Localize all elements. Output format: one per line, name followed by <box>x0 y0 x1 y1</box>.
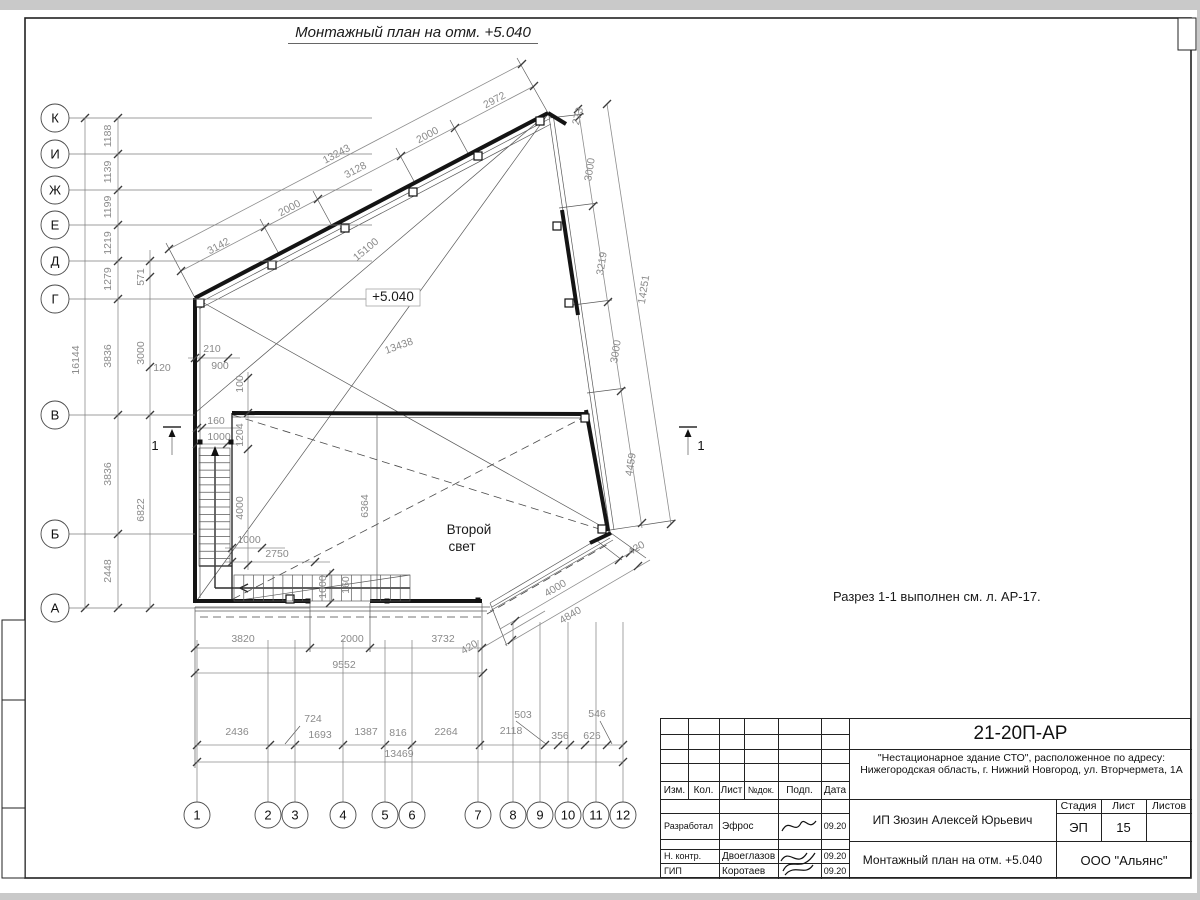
axis-number: 2 <box>264 808 271 823</box>
dimension-label: 1387 <box>354 726 378 738</box>
dimension-label: 2448 <box>102 559 114 583</box>
dimension-label: 2000 <box>414 124 440 146</box>
post-marker <box>198 440 203 445</box>
dimension-tick <box>508 636 516 644</box>
dimension-label: 503 <box>514 709 532 721</box>
dimension-label: 3142 <box>205 235 231 257</box>
signature <box>779 815 819 839</box>
dimension-label: 724 <box>304 713 322 725</box>
wall-line <box>548 113 566 124</box>
thin-line <box>197 119 549 304</box>
axis-number: 4 <box>339 808 346 823</box>
dimension-label: 1139 <box>102 161 114 184</box>
dimension-label: 3000 <box>608 339 624 364</box>
dimension-label: 356 <box>551 730 569 742</box>
axis-number: 12 <box>616 808 630 823</box>
thin-line <box>232 417 588 418</box>
margin-box-mid <box>2 700 25 808</box>
wall-line <box>586 410 608 531</box>
row-developer-date: 09.20 <box>821 813 849 839</box>
dimension-label: 4459 <box>623 452 639 477</box>
dimension-label: 1000 <box>207 431 231 443</box>
dimension-line <box>181 86 534 271</box>
col-izm: Изм. <box>661 781 688 799</box>
thin-line <box>600 721 612 744</box>
dimension-tick <box>634 562 642 570</box>
column-marker <box>581 414 589 422</box>
dimension-label: 420 <box>626 539 647 558</box>
wall-line <box>195 113 548 298</box>
dimension-label: 1279 <box>102 267 114 291</box>
axis-number: 7 <box>474 808 481 823</box>
col-data: Дата <box>821 781 849 799</box>
signature <box>777 845 819 879</box>
dimension-label: 100 <box>234 375 246 393</box>
column-marker <box>196 299 204 307</box>
sheets-label: Листов <box>1146 799 1192 813</box>
column-marker <box>553 222 561 230</box>
col-ndok: №док. <box>744 781 778 799</box>
column-marker <box>536 117 544 125</box>
dimension-tick <box>177 267 185 275</box>
dimension-label: 3219 <box>594 251 610 276</box>
axis-letter: В <box>51 408 60 423</box>
axis-letter: Б <box>51 527 60 542</box>
axis-number: 6 <box>408 808 415 823</box>
title-block: Изм. Кол. Лист №док. Подп. Дата Разработ… <box>660 718 1191 878</box>
dimension-line <box>482 611 545 648</box>
dimension-label: 1199 <box>102 196 114 219</box>
dimension-label: 626 <box>583 730 601 742</box>
dimension-label: 6364 <box>359 494 371 518</box>
thin-line <box>490 540 613 611</box>
dimension-label: 160 <box>340 576 352 594</box>
dimension-label: 160 <box>207 415 225 427</box>
dimension-label: 2972 <box>481 89 507 111</box>
col-kol: Кол. <box>688 781 719 799</box>
axis-number: 1 <box>193 808 200 823</box>
sheet-number: 15 <box>1101 813 1146 841</box>
axis-number: 11 <box>589 808 603 823</box>
dimension-label: 14251 <box>636 274 652 305</box>
row-ncontr-date: 09.20 <box>821 849 849 863</box>
dimension-label: 2264 <box>434 726 458 738</box>
dimension-line <box>607 104 671 524</box>
section-note: Разрез 1-1 выполнен см. л. АР-17. <box>833 589 1053 604</box>
axis-number: 10 <box>561 808 575 823</box>
dimension-tick <box>165 245 173 253</box>
dimension-tick <box>511 617 519 625</box>
organization-name: ООО "Альянс" <box>1056 841 1192 879</box>
dimension-label: 3000 <box>582 157 598 182</box>
dimension-label: 1000 <box>317 575 329 599</box>
thin-line <box>285 726 300 744</box>
column-marker <box>598 525 606 533</box>
axis-letter: Г <box>51 292 58 307</box>
dimension-label: 1204 <box>234 423 246 447</box>
thin-line <box>313 191 332 226</box>
axis-letter: А <box>51 601 60 616</box>
dimension-label: 6822 <box>135 498 147 522</box>
axis-number: 5 <box>381 808 388 823</box>
dimension-label: 3000 <box>135 341 147 365</box>
dimension-label: 9552 <box>332 659 356 671</box>
thin-line <box>166 243 195 298</box>
document-title: Монтажный план на отм. +5.040 <box>849 841 1056 879</box>
dimension-label: 210 <box>203 343 221 355</box>
row-gip-role: ГИП <box>664 863 718 879</box>
thin-line <box>199 124 551 309</box>
axis-letter: Д <box>51 254 60 269</box>
dimension-label: 1693 <box>308 729 332 741</box>
dimension-label: 120 <box>153 362 171 374</box>
column-marker <box>474 152 482 160</box>
dimension-tick <box>314 195 322 203</box>
stair-direction-arrow <box>211 446 219 456</box>
dimension-tick <box>451 124 459 132</box>
dimension-label: 420 <box>459 638 480 657</box>
thin-line <box>490 603 507 646</box>
axis-letter: К <box>51 111 59 126</box>
col-list: Лист <box>719 781 744 799</box>
dimension-label: 3820 <box>231 633 255 645</box>
dimension-label: 15100 <box>351 236 381 264</box>
dimension-label: 4000 <box>234 496 246 520</box>
dimension-label: 273 <box>570 106 586 126</box>
dimension-label: 13438 <box>383 335 415 356</box>
row-gip-name: Коротаев <box>722 863 777 879</box>
dimension-label: свет <box>448 539 475 554</box>
axis-letter: Е <box>51 218 60 233</box>
col-podp: Подп. <box>778 781 821 799</box>
dimension-label: 3732 <box>431 633 455 645</box>
section-arrow <box>169 429 176 437</box>
axis-letter: Ж <box>49 183 61 198</box>
dimension-label: 571 <box>135 268 147 286</box>
dashed-line <box>487 543 610 614</box>
dimension-label: 2000 <box>340 633 364 645</box>
dimension-label: 2118 <box>500 725 523 737</box>
thin-line <box>549 116 610 532</box>
dimension-label: 4840 <box>557 604 583 626</box>
margin-box-bottom <box>2 808 25 878</box>
dimension-tick <box>397 152 405 160</box>
dimension-label: 13469 <box>384 748 413 760</box>
stage-label: Стадия <box>1056 799 1101 813</box>
dimension-label: 13243 <box>321 142 353 166</box>
column-marker <box>409 188 417 196</box>
dimension-label: 3836 <box>102 344 114 368</box>
thin-line <box>195 113 548 413</box>
page-title: Монтажный план на отм. +5.040 <box>288 24 538 44</box>
dimension-label: 2436 <box>225 726 249 738</box>
column-marker <box>565 299 573 307</box>
row-ncontr-name: Двоеглазов <box>722 849 777 863</box>
axis-number: 9 <box>536 808 543 823</box>
thin-line <box>517 58 548 113</box>
dimension-label: 1188 <box>102 125 114 148</box>
dimension-tick <box>261 223 269 231</box>
dimension-line <box>505 560 650 645</box>
dimension-label: 546 <box>588 708 606 720</box>
corner-box <box>1178 18 1196 50</box>
row-developer-name: Эфрос <box>722 813 777 839</box>
dashed-line <box>233 415 588 599</box>
wall-line <box>232 413 588 414</box>
section-number: 1 <box>697 438 704 453</box>
row-developer-role: Разработал <box>664 813 718 839</box>
row-gip-date: 09.20 <box>821 863 849 879</box>
axis-letter: И <box>50 147 59 162</box>
margin-box-top <box>2 620 25 700</box>
thin-line <box>596 540 622 560</box>
dimension-tick <box>603 100 611 108</box>
address-line-1: "Нестационарное здание СТО", расположенн… <box>853 752 1190 764</box>
axis-number: 3 <box>291 808 298 823</box>
axis-number: 8 <box>509 808 516 823</box>
project-code: 21-20П-АР <box>849 719 1192 749</box>
section-arrow <box>685 429 692 437</box>
dimension-label: 3128 <box>342 159 368 181</box>
project-address: "Нестационарное здание СТО", расположенн… <box>853 752 1190 797</box>
dimension-label: 3836 <box>102 462 114 486</box>
dimension-label: 16144 <box>70 345 82 374</box>
dimension-label: 1219 <box>102 231 114 255</box>
blueprint-sheet: { "title": "Монтажный план на отм. +5.04… <box>0 0 1200 900</box>
address-line-2: Нижегородская область, г. Нижний Новгоро… <box>853 764 1190 776</box>
stage-value: ЭП <box>1056 813 1101 841</box>
generated-drawing: КИЖЕДГВБА1234567891011121614411881139119… <box>41 58 705 828</box>
elevation-label: +5.040 <box>372 289 414 304</box>
section-number: 1 <box>151 438 158 453</box>
client-name: ИП Зюзин Алексей Юрьевич <box>849 799 1056 841</box>
dimension-label: 900 <box>211 360 229 372</box>
dimension-label: 2750 <box>265 548 289 560</box>
row-ncontr-role: Н. контр. <box>664 849 718 863</box>
dimension-label: 2000 <box>276 197 302 219</box>
sheet-label: Лист <box>1101 799 1146 813</box>
dimension-label: 1000 <box>237 534 261 546</box>
dimension-label: Второй <box>447 522 492 537</box>
dimension-label: 816 <box>389 727 407 739</box>
wall-line <box>590 533 611 543</box>
post-marker <box>476 598 481 603</box>
column-marker <box>268 261 276 269</box>
